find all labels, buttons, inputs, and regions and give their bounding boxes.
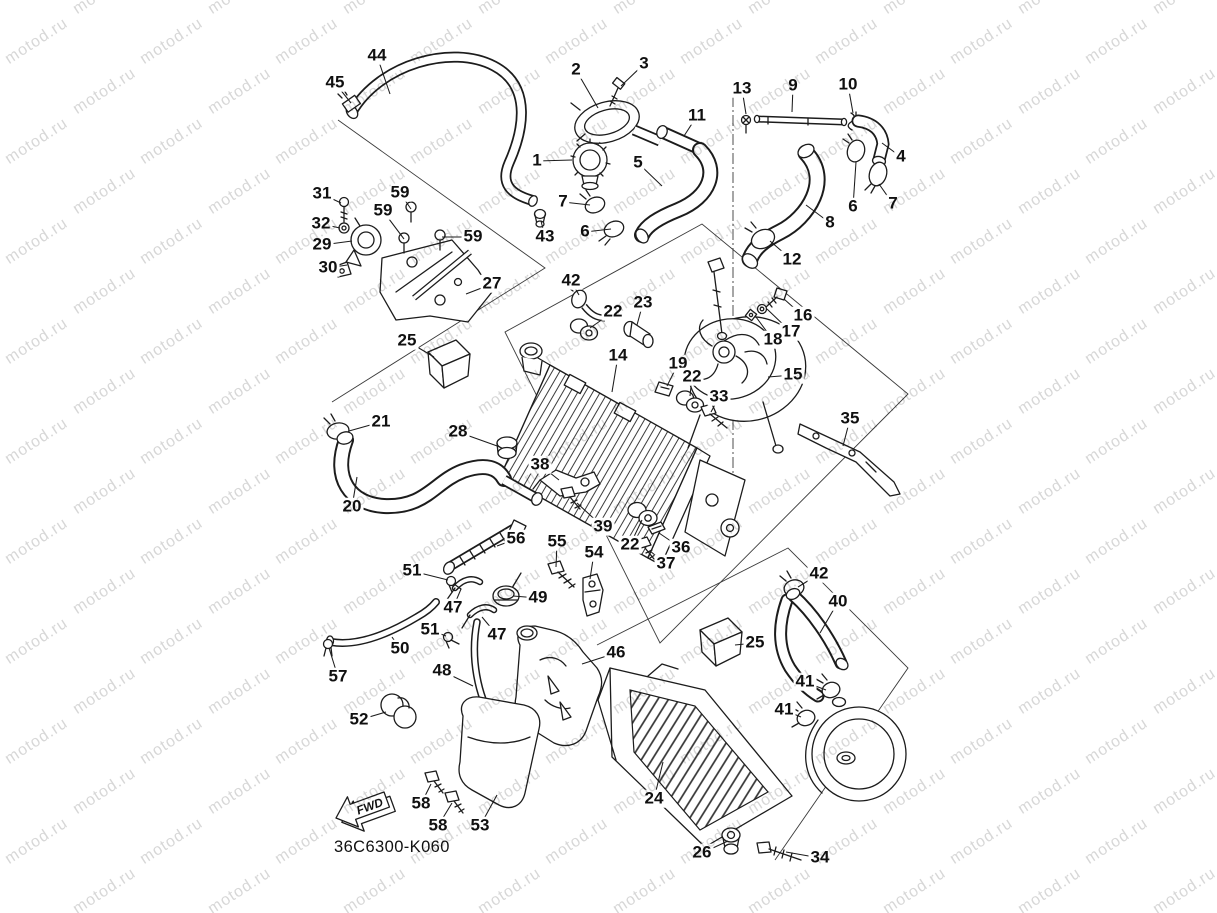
parts-diagram-page: FWD 444523157611431391046781231595932295… xyxy=(0,0,1217,913)
part-pipe-11 xyxy=(655,124,700,149)
leader-line-32 xyxy=(321,224,340,228)
part-clip-19 xyxy=(655,382,673,396)
leader-line-59 xyxy=(383,211,404,239)
part-joint-49 xyxy=(493,573,521,606)
part-screw-59a xyxy=(406,202,416,222)
diagram-part-code: 36C6300-K060 xyxy=(334,838,450,857)
leader-line-1 xyxy=(537,160,572,161)
part-grommet-22a xyxy=(571,319,598,340)
part-washer-17 xyxy=(758,305,767,314)
part-clamp-41b xyxy=(791,702,817,728)
leader-line-23 xyxy=(637,303,643,325)
part-washer-32 xyxy=(339,223,349,233)
leader-line-7 xyxy=(879,184,893,204)
part-hose-clamp-6a xyxy=(599,218,626,245)
part-hose-clamp-7a xyxy=(580,190,607,216)
part-pipe-40 xyxy=(781,587,851,696)
leader-line-16 xyxy=(784,299,803,316)
leader-line-35 xyxy=(843,419,850,446)
part-radiator-14 xyxy=(501,343,710,565)
leader-line-45 xyxy=(335,83,351,103)
leader-line-25 xyxy=(407,341,434,357)
part-clip-30 xyxy=(336,262,351,277)
leader-line-13 xyxy=(742,89,746,114)
leader-line-29 xyxy=(322,241,352,245)
leader-line-6 xyxy=(853,162,856,207)
part-plug-43 xyxy=(535,210,546,228)
leader-line-14 xyxy=(612,356,618,392)
part-clamp-42a xyxy=(566,286,605,318)
leader-line-5 xyxy=(638,163,662,186)
part-pipe-56 xyxy=(441,520,526,576)
part-clip-51b xyxy=(444,633,460,649)
leader-line-9 xyxy=(792,86,793,112)
part-louver-cover-24 xyxy=(598,664,792,847)
part-bolt-13 xyxy=(742,116,751,134)
leader-line-12 xyxy=(770,241,792,260)
leader-line-58 xyxy=(438,803,452,826)
leader-line-3 xyxy=(621,64,644,86)
part-reservoir-cover-53 xyxy=(459,697,540,808)
exploded-parts-drawing: FWD xyxy=(0,0,1217,913)
part-bracket-54 xyxy=(583,574,603,616)
part-cooling-fan-15 xyxy=(677,306,816,453)
part-cap-52 xyxy=(381,694,416,728)
part-bracket-27 xyxy=(380,240,492,322)
part-hose-clamp-7b xyxy=(865,160,889,193)
leader-line-42 xyxy=(798,574,819,587)
part-air-bleed-unit-29 xyxy=(346,218,381,266)
part-screw-59b xyxy=(399,233,409,253)
part-damper-25b xyxy=(700,618,742,666)
part-bolt-16 xyxy=(766,288,787,307)
leader-line-31 xyxy=(322,194,341,203)
part-radiator-cap-28 xyxy=(497,437,517,459)
leader-line-52 xyxy=(359,712,386,720)
leader-line-51 xyxy=(412,571,448,580)
part-breather-hose-44 xyxy=(344,57,539,208)
leader-line-21 xyxy=(349,422,381,431)
leader-line-57 xyxy=(329,648,338,677)
fwd-arrow: FWD xyxy=(331,783,398,839)
part-thermostat-cover-2 xyxy=(570,94,660,152)
leader-line-19 xyxy=(667,364,678,386)
leader-line-10 xyxy=(848,85,853,113)
part-damper-25a xyxy=(428,340,470,388)
leader-line-58 xyxy=(421,784,431,804)
part-stay-bracket-35 xyxy=(798,424,900,496)
leader-line-47 xyxy=(482,617,497,635)
part-water-pump-housing xyxy=(806,698,906,802)
part-radiator-inlet-hose-5 xyxy=(633,150,710,245)
leader-line-50 xyxy=(392,637,400,649)
part-bolt-55 xyxy=(548,561,575,588)
part-hose-clamp-6b xyxy=(843,134,867,164)
part-bolt-34 xyxy=(757,842,801,861)
leader-line-48 xyxy=(442,671,473,686)
part-bolt-31 xyxy=(340,198,349,223)
leader-line-51 xyxy=(430,630,446,636)
leader-line-2 xyxy=(576,70,598,108)
part-spacer-26 xyxy=(722,828,740,854)
leader-line-11 xyxy=(684,116,697,136)
part-collar-23 xyxy=(624,322,653,348)
part-pipe-9 xyxy=(754,115,846,125)
leader-line-47 xyxy=(453,589,461,608)
part-water-pump-hose-8 xyxy=(740,142,817,272)
part-thermostat-1 xyxy=(571,139,610,190)
leader-line-28 xyxy=(458,432,500,447)
part-hose-50 xyxy=(327,602,437,646)
